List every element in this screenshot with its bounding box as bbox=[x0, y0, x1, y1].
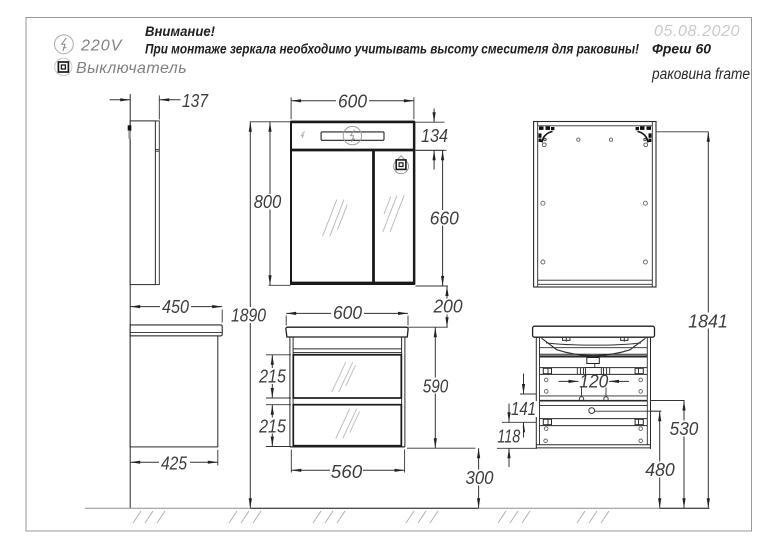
svg-text:141: 141 bbox=[511, 399, 536, 419]
svg-text:05.08.2020: 05.08.2020 bbox=[654, 23, 740, 40]
svg-text:220V: 220V bbox=[80, 38, 123, 55]
svg-text:118: 118 bbox=[497, 426, 520, 446]
svg-text:560: 560 bbox=[331, 462, 363, 482]
svg-text:200: 200 bbox=[433, 296, 463, 316]
svg-text:530: 530 bbox=[670, 419, 699, 439]
svg-text:Выключатель: Выключатель bbox=[76, 60, 187, 77]
svg-text:При монтаже зеркала необходимо: При монтаже зеркала необходимо учитывать… bbox=[145, 41, 639, 57]
svg-text:Внимание!: Внимание! bbox=[145, 23, 215, 39]
svg-text:215: 215 bbox=[258, 366, 287, 386]
svg-text:Фреш 60: Фреш 60 bbox=[652, 41, 711, 57]
svg-text:600: 600 bbox=[338, 91, 367, 111]
svg-text:300: 300 bbox=[466, 468, 494, 488]
svg-text:425: 425 bbox=[161, 453, 188, 473]
svg-text:1890: 1890 bbox=[231, 306, 266, 326]
svg-text:660: 660 bbox=[430, 208, 459, 228]
svg-text:450: 450 bbox=[162, 297, 189, 317]
svg-text:480: 480 bbox=[645, 460, 675, 480]
svg-text:590: 590 bbox=[423, 376, 449, 396]
svg-text:800: 800 bbox=[254, 192, 282, 212]
svg-text:120: 120 bbox=[579, 371, 608, 391]
svg-text:1841: 1841 bbox=[688, 312, 728, 332]
svg-text:раковина frame: раковина frame bbox=[651, 66, 750, 83]
svg-text:137: 137 bbox=[182, 91, 209, 111]
svg-text:134: 134 bbox=[421, 126, 448, 146]
svg-text:215: 215 bbox=[258, 417, 287, 437]
svg-text:600: 600 bbox=[333, 303, 362, 323]
